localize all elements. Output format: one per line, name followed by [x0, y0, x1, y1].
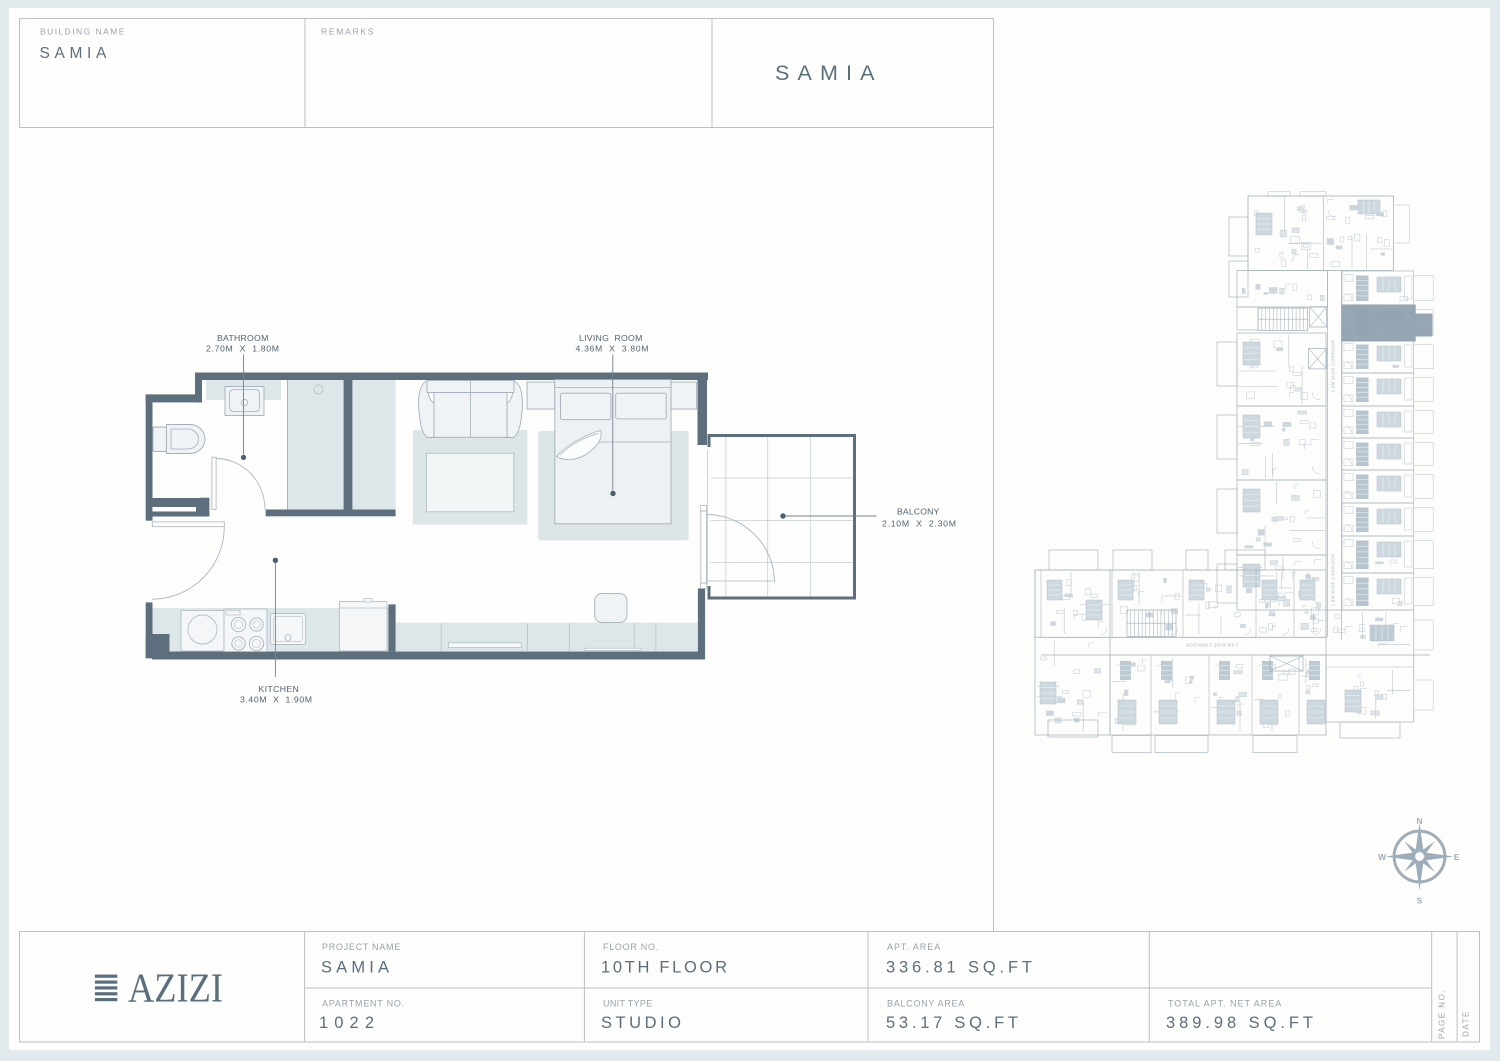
svg-text:1.8M WIDE CORRIDOR: 1.8M WIDE CORRIDOR [1331, 554, 1336, 607]
svg-text:1.8M WIDE CORRIDOR: 1.8M WIDE CORRIDOR [1331, 340, 1336, 393]
svg-text:FLOOR NO.: FLOOR NO. [603, 942, 660, 952]
svg-text:TOTAL APT. NET AREA: TOTAL APT. NET AREA [1168, 999, 1283, 1009]
svg-text:BALCONY AREA: BALCONY AREA [887, 999, 966, 1009]
svg-text:DATE: DATE [1461, 1010, 1470, 1037]
svg-text:N: N [1417, 816, 1423, 826]
svg-text:AZIZI: AZIZI [128, 965, 223, 1011]
svg-text:S: S [1417, 896, 1423, 906]
svg-text:BUILDING NAME: BUILDING NAME [40, 27, 127, 37]
svg-text:336.81 SQ.FT: 336.81 SQ.FT [886, 959, 1037, 977]
svg-text:SAMIA: SAMIA [40, 45, 112, 62]
svg-text:KITCHEN: KITCHEN [259, 684, 300, 694]
svg-text:2.70M X 1.80M: 2.70M X 1.80M [206, 344, 279, 354]
svg-text:LIVING ROOM: LIVING ROOM [579, 333, 643, 343]
svg-text:PAGE NO.: PAGE NO. [1438, 989, 1447, 1039]
svg-text:1.8M WIDE CORRIDOR: 1.8M WIDE CORRIDOR [1186, 643, 1239, 648]
svg-text:REMARKS: REMARKS [321, 27, 376, 37]
svg-text:SAMIA: SAMIA [321, 959, 394, 977]
svg-text:APT. AREA: APT. AREA [887, 942, 942, 952]
svg-text:BALCONY: BALCONY [897, 507, 940, 517]
svg-text:4.36M X 3.80M: 4.36M X 3.80M [576, 344, 649, 354]
svg-text:W: W [1378, 852, 1386, 862]
svg-text:STUDIO: STUDIO [601, 1014, 686, 1032]
svg-text:UNIT TYPE: UNIT TYPE [603, 999, 654, 1009]
svg-text:53.17 SQ.FT: 53.17 SQ.FT [886, 1014, 1023, 1032]
svg-text:1022: 1022 [319, 1014, 379, 1032]
svg-text:10TH FLOOR: 10TH FLOOR [601, 959, 732, 977]
svg-text:2.10M X 2.30M: 2.10M X 2.30M [882, 519, 956, 529]
svg-text:BATHROOM: BATHROOM [217, 333, 269, 343]
svg-text:PROJECT NAME: PROJECT NAME [322, 942, 402, 952]
svg-text:E: E [1454, 852, 1460, 862]
svg-text:APARTMENT NO.: APARTMENT NO. [322, 999, 406, 1009]
svg-text:389.98 SQ.FT: 389.98 SQ.FT [1166, 1014, 1318, 1032]
svg-text:SAMIA: SAMIA [775, 61, 883, 85]
svg-text:3.40M X 1.90M: 3.40M X 1.90M [240, 695, 312, 705]
